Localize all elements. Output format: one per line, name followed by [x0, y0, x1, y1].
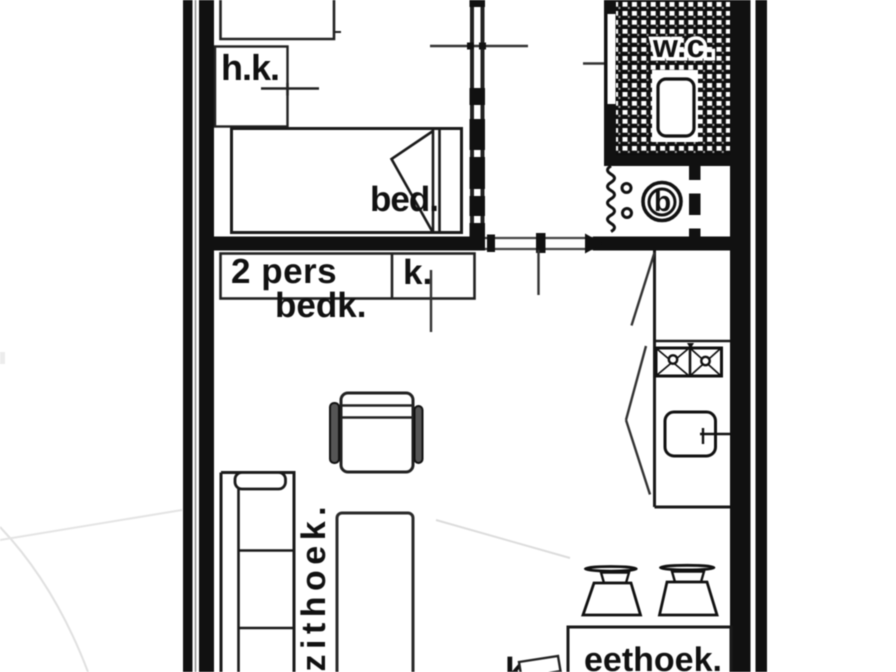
svg-text:bedk.: bedk.	[275, 286, 366, 325]
svg-text:h.k.: h.k.	[221, 47, 279, 88]
svg-text:bed.: bed.	[370, 180, 438, 219]
svg-text:zithoek.: zithoek.	[295, 501, 333, 672]
svg-text:eethoek.: eethoek.	[584, 641, 722, 672]
svg-text:w.c.: w.c.	[652, 28, 714, 64]
svg-text:b: b	[654, 186, 671, 217]
svg-text:k.: k.	[403, 253, 432, 292]
